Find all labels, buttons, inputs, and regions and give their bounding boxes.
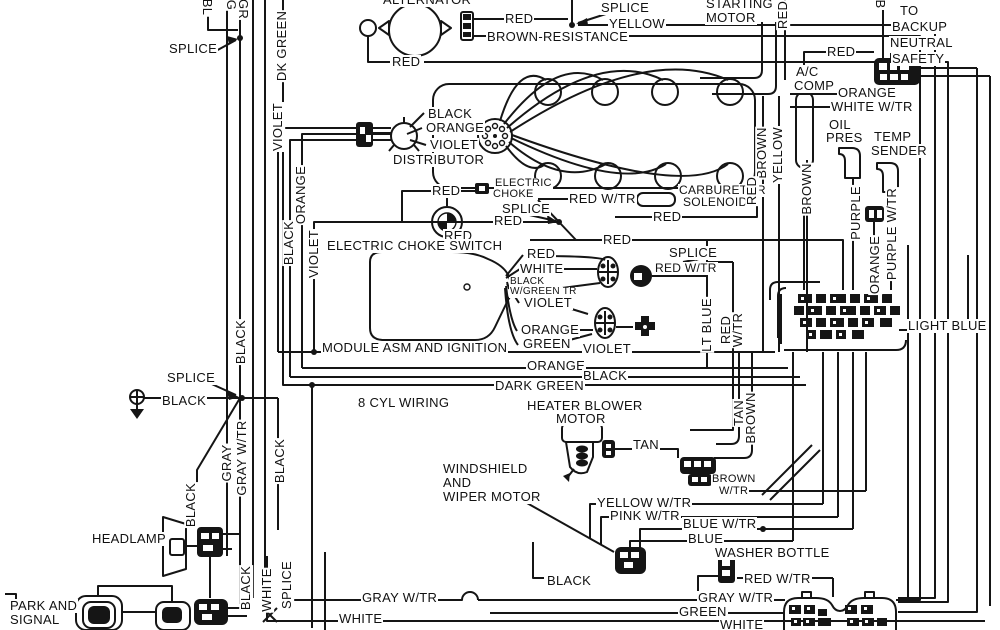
wire-label: RED	[776, 0, 790, 30]
wire-label: DK GREEN	[275, 10, 289, 82]
wire-label: RED	[826, 45, 856, 59]
wire-label: B	[873, 0, 887, 9]
wire-label: NEUTRAL	[889, 36, 954, 50]
wire-label: ORANGE	[520, 323, 580, 337]
wire-label: BLACK	[282, 220, 296, 266]
wire-label: BLACK	[161, 394, 207, 408]
wire-label: LT BLUE	[700, 297, 714, 353]
wire-label: WHITE	[719, 618, 764, 630]
wire-label: BLACK	[184, 482, 198, 528]
wire-label: ORANGE	[868, 235, 882, 295]
wire-label: PURPLE	[849, 185, 863, 241]
wire-label: HEADLAMP	[91, 532, 167, 546]
wire-label: RED	[652, 210, 682, 224]
wire-label: WIPER MOTOR	[442, 490, 542, 504]
wire-label: W/TR	[731, 312, 745, 348]
wire-label: BLACK	[273, 438, 287, 484]
wire-label: SPLICE	[166, 371, 216, 385]
wire-label: YELLOW	[608, 17, 666, 31]
wire-label: SPLICE	[600, 1, 650, 15]
wire-label: BLUE	[687, 532, 724, 546]
wire-label: ORANGE	[526, 359, 586, 373]
wire-label: GR	[236, 0, 250, 20]
wire-label: VIOLET	[271, 102, 285, 152]
wire-label: WHITE	[260, 567, 274, 612]
wire-label: TO	[899, 4, 919, 18]
wire-label: WHITE	[519, 262, 564, 276]
wire-label: MODULE ASM AND IGNITION	[321, 341, 508, 355]
wire-label: RED W/TR	[743, 572, 812, 586]
wire-label: RED W/TR	[568, 192, 637, 206]
wire-label: BLACK	[239, 565, 253, 611]
wire-label: GRAY W/TR	[697, 591, 774, 605]
wire-label: RED	[745, 176, 759, 206]
wire-label: BROWN-RESISTANCE	[486, 30, 629, 44]
wire-label: ALTERNATOR	[382, 0, 472, 7]
wire-label: GRAY W/TR	[361, 591, 438, 605]
wire-label: WHITE W/TR	[830, 100, 914, 114]
wire-label: WASHER BOTTLE	[714, 546, 831, 560]
wire-label: A/C	[795, 65, 820, 79]
wire-label: SIGNAL	[9, 613, 60, 627]
wiring-diagram: SPLICEALTERNATORREDBROWN-RESISTANCESPLIC…	[0, 0, 1000, 630]
wire-label: VIOLET	[429, 138, 479, 152]
wire-label: TEMP	[873, 130, 912, 144]
wire-label: BLACK	[582, 369, 628, 383]
wire-label: RED	[526, 247, 556, 261]
wire-label: SPLICE	[280, 560, 294, 610]
wire-label: PRES	[825, 131, 864, 145]
wire-label: RED	[504, 12, 534, 26]
wire-label: SPLICE	[168, 42, 218, 56]
wire-label: VIOLET	[523, 296, 573, 310]
wire-label: WINDSHIELD	[442, 462, 529, 476]
wire-label: BROWN	[755, 126, 769, 179]
wire-label: PINK W/TR	[609, 509, 681, 523]
wire-label: CHOKE	[492, 189, 535, 201]
wire-label: ELECTRIC CHOKE SWITCH	[326, 239, 503, 253]
wire-label: BACKUP	[891, 20, 948, 34]
wire-label: VIOLET	[307, 229, 321, 279]
wire-label: COMP	[793, 79, 835, 93]
wire-label: MOTOR	[705, 11, 757, 25]
wire-label: VIOLET	[582, 342, 632, 356]
wire-label: BLACK	[234, 319, 248, 365]
wire-label: W/TR	[718, 486, 749, 498]
wire-label: 8 CYL WIRING	[357, 396, 450, 410]
wire-label: RED	[493, 214, 523, 228]
wire-label: BROWN	[711, 474, 757, 486]
wire-label: ORANGE	[425, 121, 485, 135]
wire-label: AND	[442, 476, 472, 490]
wire-label: WHITE	[338, 612, 383, 626]
wire-label: PARK AND	[9, 599, 78, 613]
wire-label: TAN	[632, 438, 660, 452]
wire-label: SPLICE	[668, 246, 718, 260]
wire-label: SAFETY	[891, 52, 945, 66]
wire-label: GRAY	[220, 443, 234, 482]
wire-label: SENDER	[870, 144, 928, 158]
wire-label: BROWN	[800, 162, 814, 215]
wire-label: ORANGE	[294, 165, 308, 225]
wire-label: YELLOW	[771, 126, 785, 184]
wire-label: BLACK	[546, 574, 592, 588]
wire-label: LIGHT BLUE	[907, 319, 988, 333]
wire-label: RED	[602, 233, 632, 247]
wire-label: ORANGE	[837, 86, 897, 100]
wire-label: BLUE W/TR	[682, 517, 757, 531]
wire-label: BLACK	[427, 107, 473, 121]
wire-label: DISTRIBUTOR	[392, 153, 485, 167]
wire-label: RED W/TR	[654, 262, 718, 275]
label-layer: SPLICEALTERNATORREDBROWN-RESISTANCESPLIC…	[0, 0, 1000, 630]
wire-label: SOLENOID	[682, 196, 748, 209]
wire-label: BROWN	[744, 391, 758, 444]
wire-label: RED	[431, 184, 461, 198]
wire-label: BL	[200, 0, 214, 16]
wire-label: RED	[391, 55, 421, 69]
wire-label: MOTOR	[555, 412, 607, 426]
wire-label: GRAY W/TR	[235, 419, 249, 496]
wire-label: PURPLE W/TR	[885, 187, 899, 281]
wire-label: GREEN	[522, 337, 572, 351]
wire-label: DARK GREEN	[494, 379, 585, 393]
